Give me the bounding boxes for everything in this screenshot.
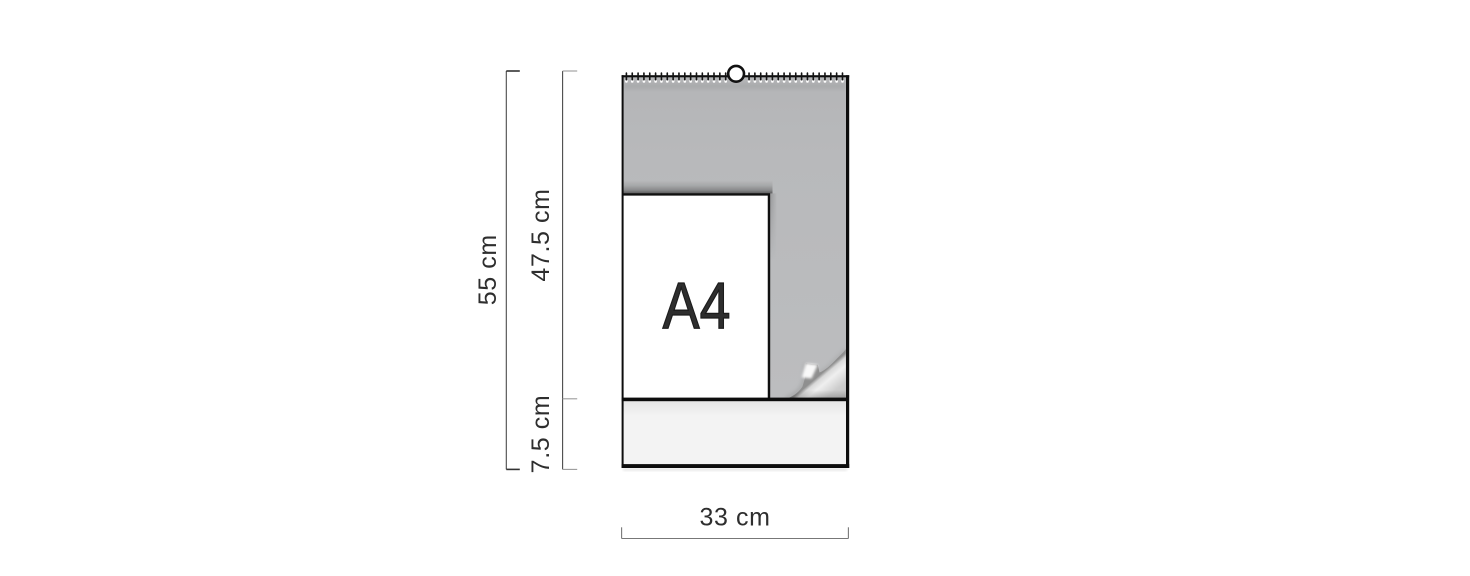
svg-text:47.5 cm: 47.5 cm (527, 188, 555, 281)
svg-text:33 cm: 33 cm (699, 503, 770, 531)
svg-text:A4: A4 (663, 269, 731, 343)
svg-text:7.5 cm: 7.5 cm (527, 395, 555, 474)
svg-text:55 cm: 55 cm (474, 234, 502, 305)
